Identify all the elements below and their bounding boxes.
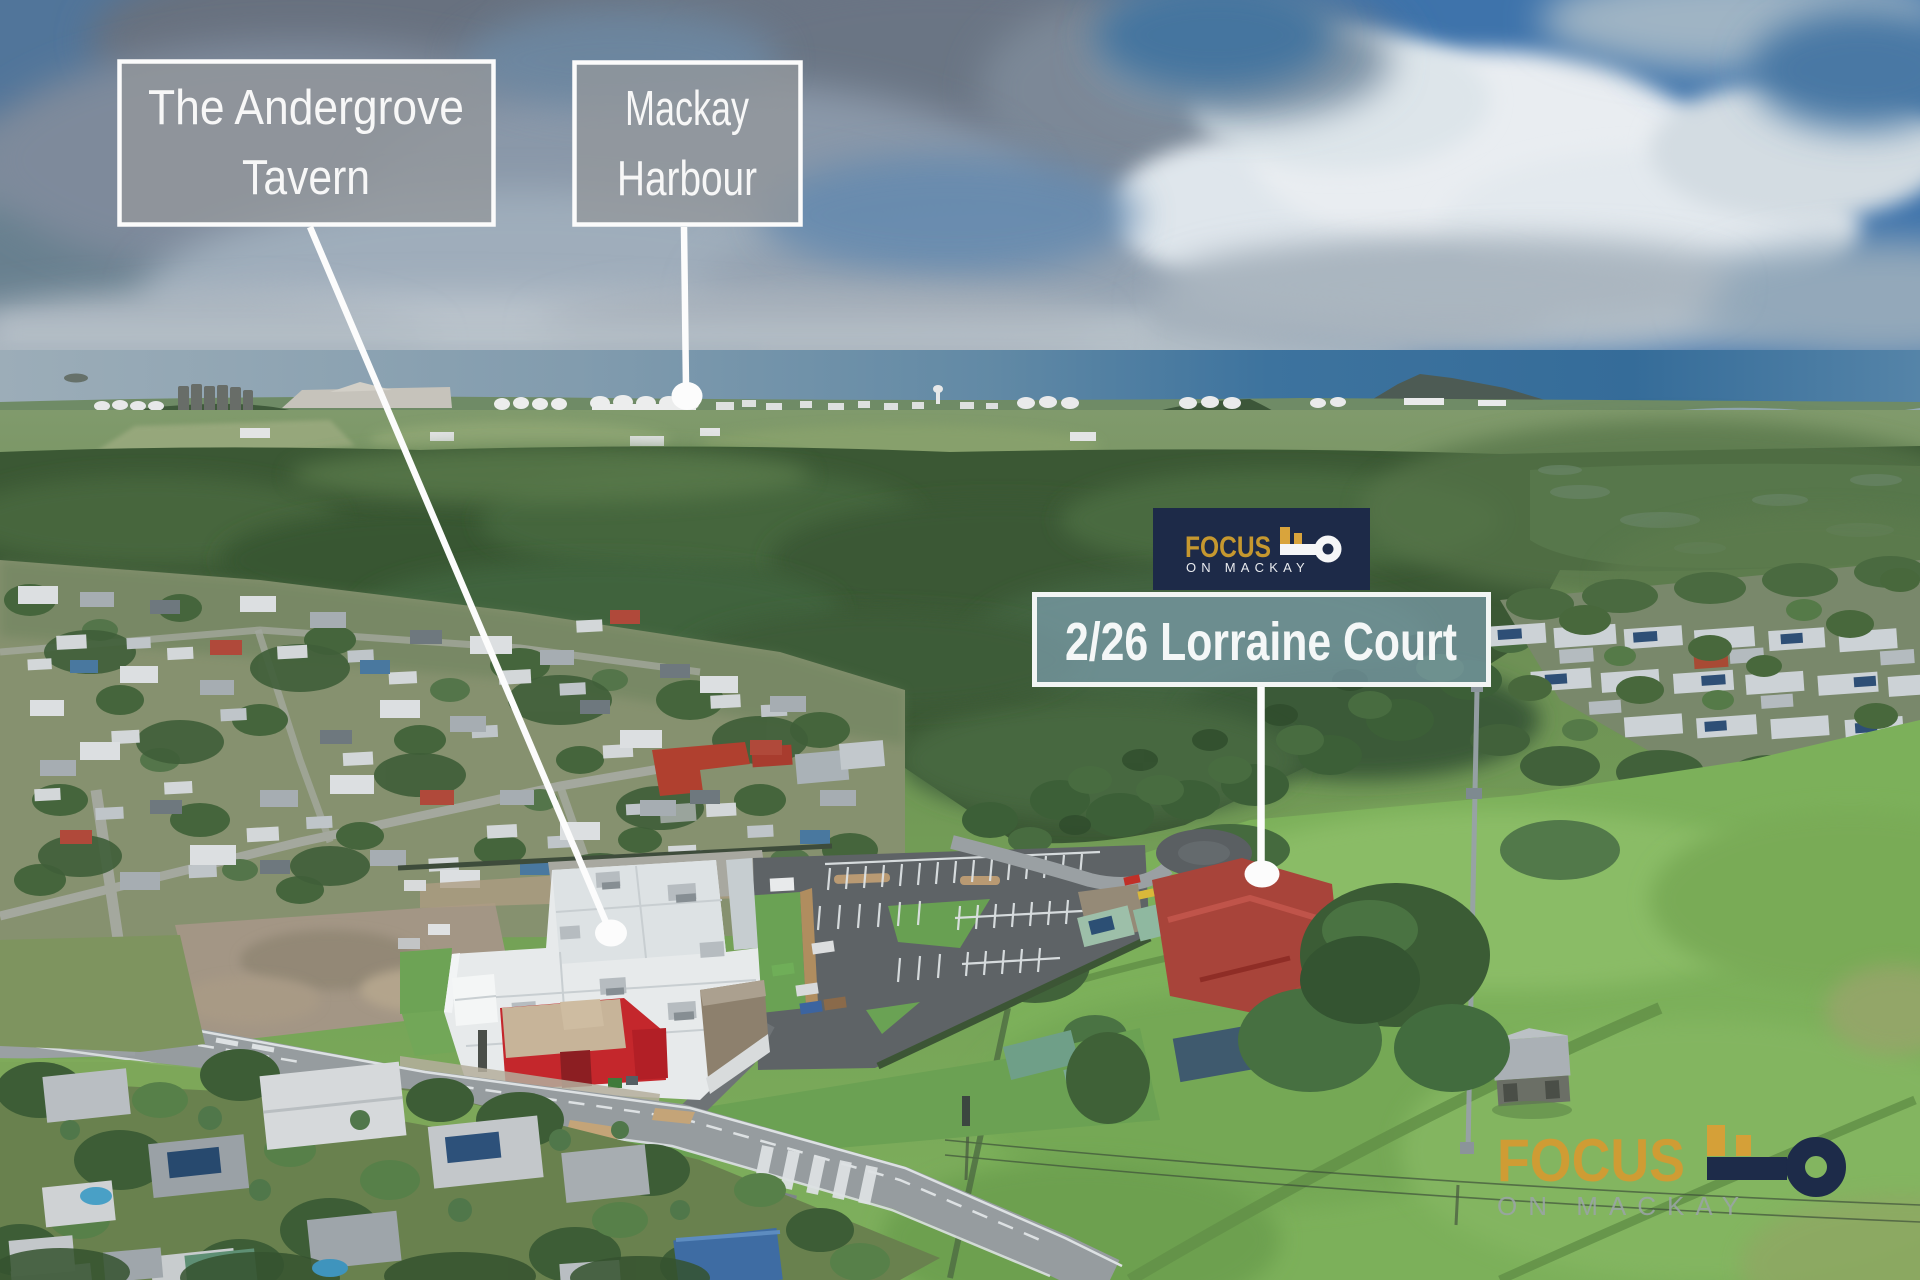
svg-text:Mackay: Mackay [625, 82, 749, 136]
svg-text:ON MACKAY: ON MACKAY [1186, 560, 1310, 575]
svg-text:The Andergrove: The Andergrove [148, 81, 464, 135]
svg-text:ON MACKAY: ON MACKAY [1497, 1191, 1750, 1221]
svg-text:2/26 Lorraine Court: 2/26 Lorraine Court [1065, 612, 1457, 672]
svg-text:Tavern: Tavern [242, 151, 370, 205]
svg-text:FOCUS: FOCUS [1497, 1127, 1685, 1194]
svg-text:Harbour: Harbour [617, 152, 757, 206]
